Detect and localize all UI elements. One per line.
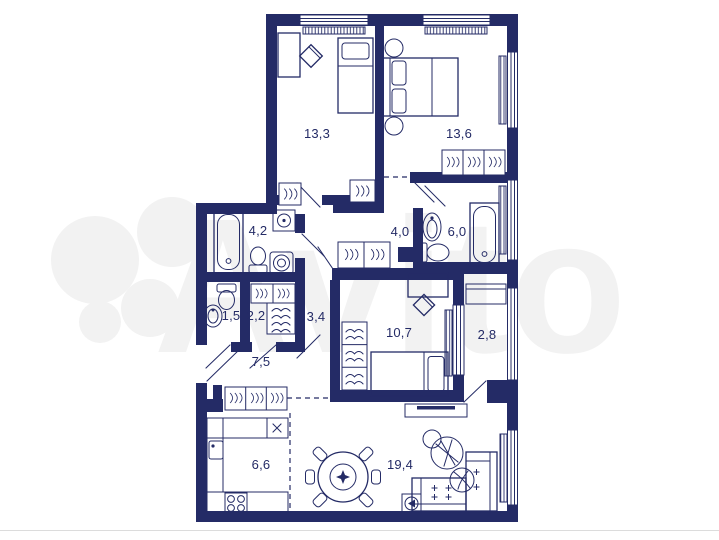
floor-lamp-icon xyxy=(402,494,421,513)
room-label-wc: 1,5 xyxy=(222,308,241,323)
watermark-circle xyxy=(51,216,139,304)
wardrobe-icon xyxy=(350,180,375,202)
room-label-bedroom-1: 13,3 xyxy=(304,126,330,141)
room-label-kitchen: 6,6 xyxy=(252,457,271,472)
window-icon xyxy=(508,52,518,128)
kitchen-furniture xyxy=(207,418,288,513)
wardrobe-icon xyxy=(279,183,301,205)
radiator-icon xyxy=(303,27,365,34)
radiator-icon xyxy=(499,56,506,124)
room-label-bathroom-2: 6,0 xyxy=(448,224,467,239)
plant-icon xyxy=(423,430,463,469)
floor-plan-page: Avito xyxy=(0,0,719,540)
room-label-closet: 2,2 xyxy=(247,308,266,323)
tv-stand-icon xyxy=(405,404,467,417)
room-label-bedroom-2: 13,6 xyxy=(446,126,472,141)
chest-of-drawers-icon xyxy=(342,322,367,390)
bedroom-2-furniture xyxy=(383,39,505,175)
wardrobe-icon xyxy=(338,242,390,268)
room-label-corridor: 3,4 xyxy=(307,309,326,324)
wardrobe-icon xyxy=(442,150,505,175)
room-label-bedroom-3: 10,7 xyxy=(386,325,412,340)
nightstand-icon xyxy=(385,117,403,135)
floor-plan: Avito xyxy=(0,0,719,540)
glazed-partition-icon xyxy=(453,305,464,375)
stove-burners-icon xyxy=(225,493,247,513)
double-bed-icon xyxy=(383,58,458,116)
room-label-living-room: 19,4 xyxy=(387,457,413,472)
window-icon xyxy=(300,15,368,25)
plant-icon xyxy=(450,468,474,492)
wardrobe-icon xyxy=(225,387,287,410)
hob-icon xyxy=(267,418,288,438)
room-label-hall-upper: 4,0 xyxy=(391,224,410,239)
radiator-icon xyxy=(500,434,507,502)
window-icon xyxy=(423,15,490,25)
shelves-icon xyxy=(267,303,295,334)
desk-icon xyxy=(278,33,300,77)
room-label-loggia: 2,8 xyxy=(478,327,497,342)
radiator-icon xyxy=(425,27,487,34)
towel-rail-icon xyxy=(499,186,506,254)
single-bed-icon xyxy=(338,38,373,113)
kitchen-sink-icon xyxy=(209,441,223,459)
window-icon xyxy=(508,430,518,505)
wardrobe-icon xyxy=(251,284,295,303)
dining-table-icon xyxy=(318,452,368,502)
nightstand-icon xyxy=(385,39,403,57)
window-icon xyxy=(508,180,518,260)
desk-chair-icon xyxy=(300,45,323,68)
watermark-circle xyxy=(79,301,121,343)
dining-chair-icon xyxy=(306,470,315,484)
room-label-bathroom-1: 4,2 xyxy=(249,223,268,238)
room-label-hallway: 7,5 xyxy=(252,354,271,369)
hall-upper-furniture xyxy=(338,242,390,268)
page-divider xyxy=(0,530,719,531)
balcony-glazing-icon xyxy=(508,288,518,380)
dining-chair-icon xyxy=(372,470,381,484)
hallway-furniture xyxy=(225,387,287,410)
corner-sofa-icon xyxy=(412,452,497,511)
